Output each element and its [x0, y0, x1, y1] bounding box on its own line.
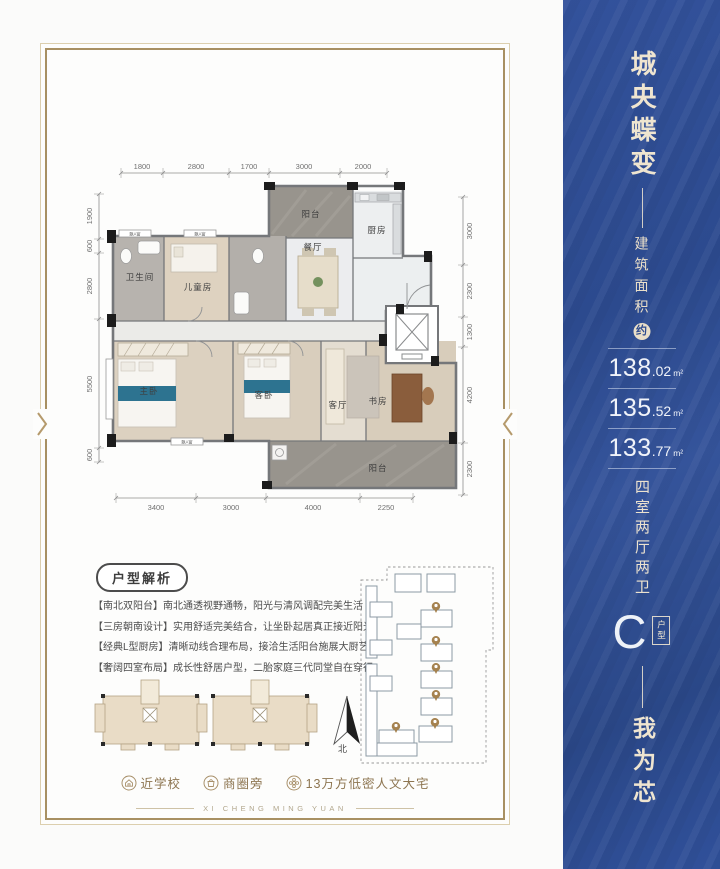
area-value-2: 135.52m²: [608, 388, 676, 428]
area-unit: m²: [673, 368, 683, 378]
site-plan: [349, 562, 505, 776]
balcony-bottom-area: [269, 441, 456, 488]
chevron-right-icon: [33, 409, 51, 439]
dim-left-5: 600: [85, 449, 94, 462]
dim-top-2: 2800: [188, 162, 205, 171]
poster-page: 飘A窗 飘A窗 飘A窗: [0, 0, 720, 869]
unit-type-letter: C: [613, 608, 647, 655]
caption-rule-left: [136, 808, 194, 809]
unit-type: C 户型: [613, 608, 671, 655]
slogan-top: 城央蝶变: [623, 50, 660, 182]
analysis-title-badge: 户型解析: [96, 563, 188, 592]
area-int: 135: [609, 394, 652, 423]
dim-bottom-4: 2250: [378, 503, 395, 512]
feature-label: 近学校: [141, 773, 182, 792]
room-label-living-room: 客厅: [328, 400, 347, 410]
area-dec: .77: [652, 443, 671, 459]
feature-label: 商圈旁: [223, 773, 264, 792]
layout-description: 四室两厅两卫: [631, 479, 652, 599]
dim-right-1: 3000: [465, 223, 474, 240]
area-int: 133: [609, 434, 652, 463]
analysis-bullet: 【南北双阳台】南北通透视野通畅，阳光与清风调配完美生活: [93, 597, 361, 618]
dim-right-3: 1300: [465, 324, 474, 341]
dim-left-2: 600: [85, 240, 94, 253]
feature-label: 13万方低密人文大宅: [306, 773, 430, 792]
area-unit: m²: [673, 408, 683, 418]
north-label: 北: [338, 744, 347, 754]
feature-community: 13万方低密人文大宅: [286, 773, 430, 792]
dim-bottom-3: 4000: [305, 503, 322, 512]
approx-badge: 约: [633, 323, 650, 340]
area-title: 建筑面积: [632, 236, 652, 320]
business-district-icon: [203, 775, 219, 791]
room-label-balcony-top: 阳台: [301, 209, 320, 219]
dim-top-1: 1800: [134, 162, 151, 171]
area-value-3: 133.77m²: [608, 428, 676, 468]
room-label-guest-bedroom: 客卧: [254, 390, 273, 400]
slogan-bottom: 我为芯: [625, 716, 659, 812]
caption-text: XI CHENG MING YUAN: [203, 804, 347, 813]
unit-type-label: 户型: [652, 616, 670, 645]
school-icon: [121, 775, 137, 791]
bay-window-label: 飘A窗: [129, 231, 140, 238]
analysis-bullet: 【三房朝南设计】实用舒适完美结合，让坐卧起居真正接近阳光: [93, 618, 361, 639]
dim-top-3: 1700: [241, 162, 258, 171]
dim-right-2: 2300: [465, 283, 474, 300]
area-unit: m²: [673, 448, 683, 458]
room-label-bathroom: 卫生间: [126, 272, 155, 282]
dim-bottom-1: 3400: [148, 503, 165, 512]
elevator-shaft: [386, 306, 438, 363]
dim-bottom-2: 3000: [223, 503, 240, 512]
divider-line-top: [642, 188, 643, 228]
bay-window-label: 飘A窗: [181, 439, 192, 446]
chevron-left-icon: [499, 409, 517, 439]
analysis-bullets: 【南北双阳台】南北通透视野通畅，阳光与清风调配完美生活 【三房朝南设计】实用舒适…: [93, 597, 361, 679]
room-label-dining: 餐厅: [303, 242, 322, 252]
dim-left-3: 2800: [85, 278, 94, 295]
area-value-1: 138.02m²: [608, 348, 676, 388]
feature-row: 近学校 商圈旁 13万方低密人文大宅: [41, 773, 509, 792]
floor-plan: 飘A窗 飘A窗 飘A窗: [76, 144, 511, 526]
room-label-kids-room: 儿童房: [184, 282, 213, 292]
feature-business: 商圈旁: [203, 773, 264, 792]
dim-top-5: 2000: [355, 162, 372, 171]
dim-right-4: 4200: [465, 387, 474, 404]
area-dec: .52: [652, 403, 671, 419]
community-icon: [286, 775, 302, 791]
dim-right-5: 2300: [465, 461, 474, 478]
side-panel: 城央蝶变 建筑面积 约 138.02m² 135.52m² 133.77m² 四…: [563, 0, 720, 869]
floorplan-card: 飘A窗 飘A窗 飘A窗: [40, 43, 510, 825]
area-dec: .02: [652, 363, 671, 379]
room-label-kitchen: 厨房: [367, 225, 386, 235]
caption-rule-right: [356, 808, 414, 809]
dim-top-4: 3000: [296, 162, 313, 171]
project-caption: XI CHENG MING YUAN: [41, 804, 509, 813]
dim-left-1: 1900: [85, 208, 94, 225]
analysis-bullet: 【经典L型厨房】清晰动线合理布局，接洽生活阳台施展大厨艺: [93, 638, 361, 659]
bay-window-label: 飘A窗: [194, 231, 205, 238]
dim-left-4: 5500: [85, 376, 94, 393]
area-int: 138: [609, 354, 652, 383]
room-label-balcony-bottom: 阳台: [368, 463, 387, 473]
building-key-plan: [91, 672, 325, 768]
room-label-master-bedroom: 主卧: [139, 386, 158, 396]
room-label-study: 书房: [368, 396, 387, 406]
area-list: 138.02m² 135.52m² 133.77m²: [608, 348, 676, 469]
divider-line-bottom: [642, 666, 643, 708]
feature-school: 近学校: [121, 773, 182, 792]
